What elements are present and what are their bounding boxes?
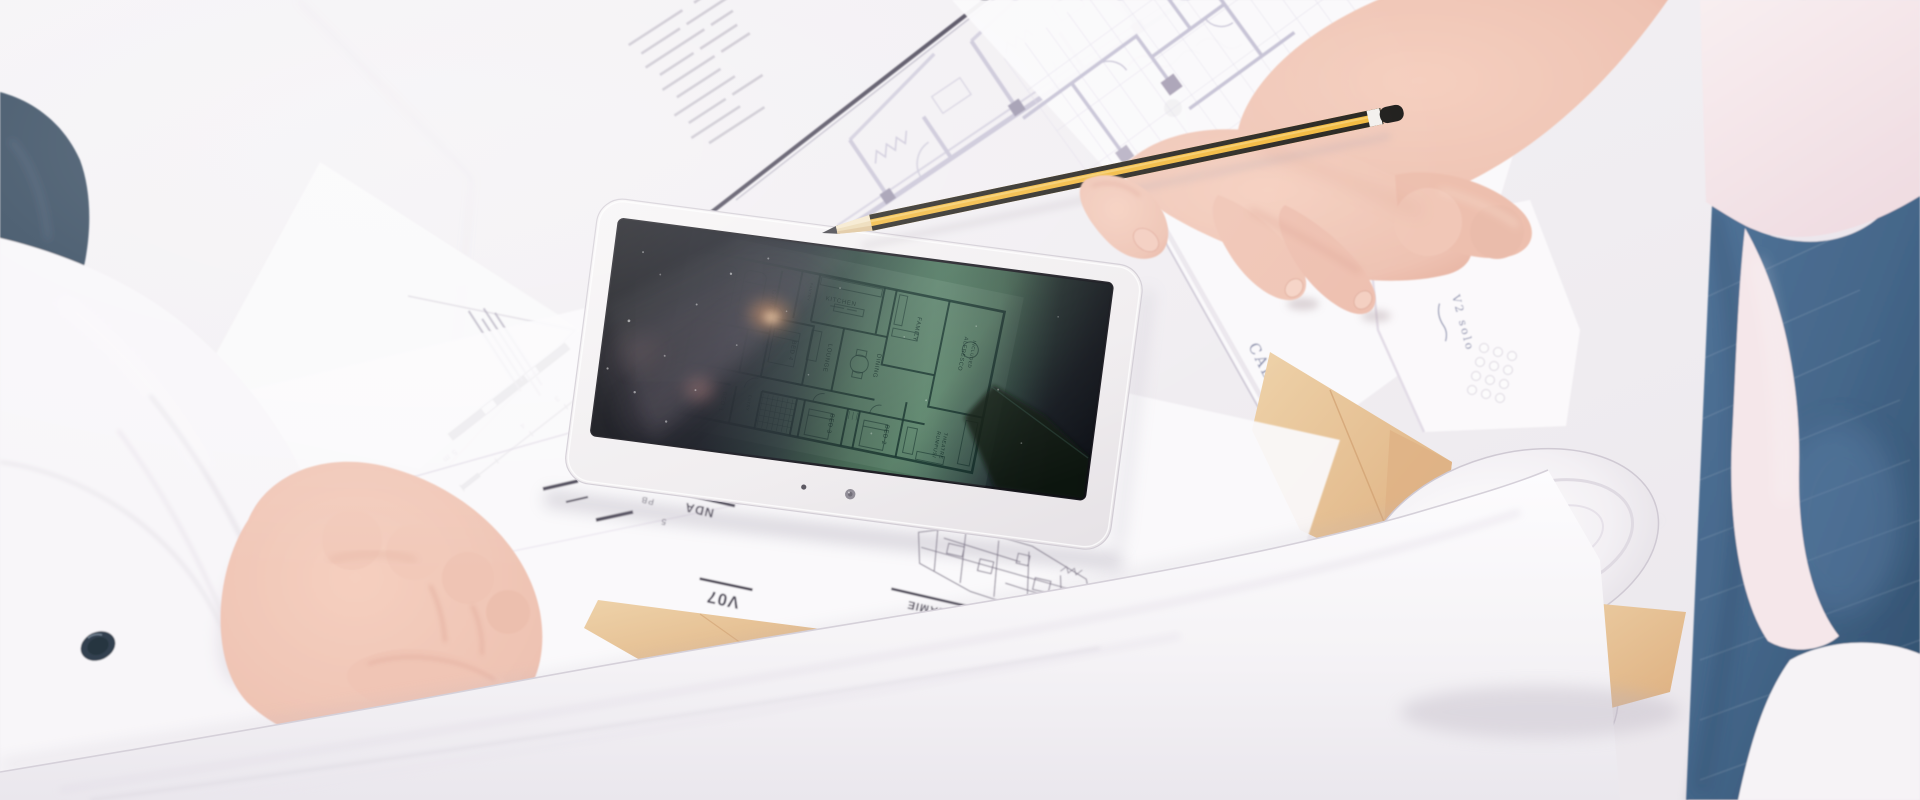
ambient-light xyxy=(0,0,1920,800)
photo-architects-tablet: CABALLETO. V2 solo 5 m 3 4 xyxy=(0,0,1920,800)
